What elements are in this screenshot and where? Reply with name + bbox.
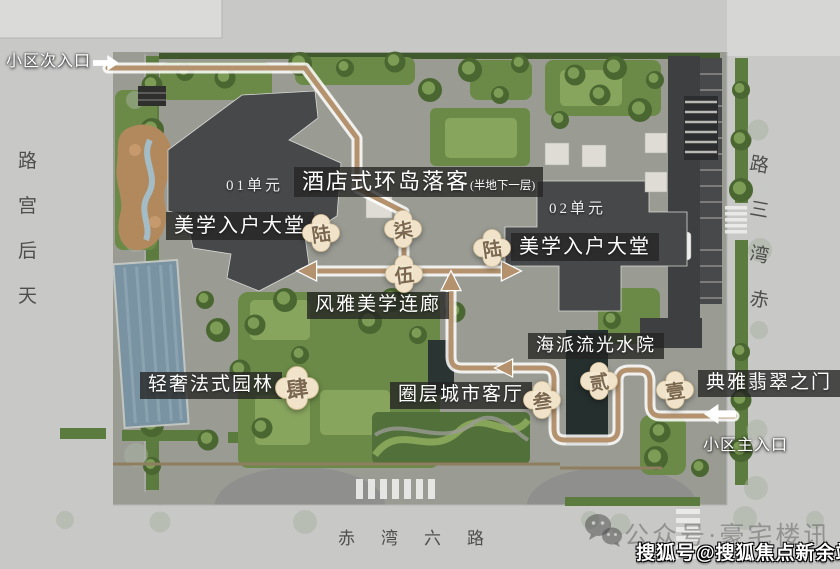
unit-02-label: 02单元 — [549, 197, 606, 218]
label-lobby-right: 美学入户大堂 — [511, 233, 659, 261]
label-lobby-left: 美学入户大堂 — [166, 212, 314, 240]
route-badge-5: 伍 — [385, 255, 423, 293]
label-hotel-dropoff: 酒店式环岛落客(半地下一层) — [294, 167, 543, 197]
route-badge-3: 叁 — [523, 381, 561, 419]
label-water-court: 海派流光水院 — [528, 333, 664, 359]
label-city-livingroom: 圈层城市客厅 — [390, 382, 532, 409]
main-entrance-label: 小区主入口 — [703, 431, 788, 455]
sohu-watermark: 搜狐号@搜狐焦点新余站 — [636, 538, 840, 565]
wechat-icon — [583, 512, 623, 548]
route-badge-2: 贰 — [580, 362, 618, 400]
route-badge-1: 壹 — [656, 371, 694, 409]
label-corridor: 风雅美学连廊 — [307, 292, 449, 319]
road-name-chiwan-6th: 赤 湾 六 路 — [338, 524, 484, 549]
road-name-chiwan-3rd: 路 三 湾 赤 — [750, 150, 769, 312]
route-badge-4: 肆 — [275, 366, 319, 410]
secondary-entrance-label: 小区次入口 — [6, 47, 91, 71]
label-jade-gate: 典雅翡翠之门 — [698, 370, 840, 397]
unit-01-label: 01单元 — [226, 174, 283, 195]
road-name-tianhougong: 路 宫 后 天 — [18, 146, 37, 308]
site-plan: 路 宫 后 天 路 三 湾 赤 赤 湾 六 路 小区次入口 小区主入口 01单元… — [0, 0, 840, 569]
route-badge-6-right: 陆 — [473, 229, 511, 267]
label-french-garden: 轻奢法式园林 — [140, 372, 282, 399]
route-badge-6-left: 陆 — [302, 214, 340, 252]
route-badge-7: 柒 — [384, 210, 422, 248]
